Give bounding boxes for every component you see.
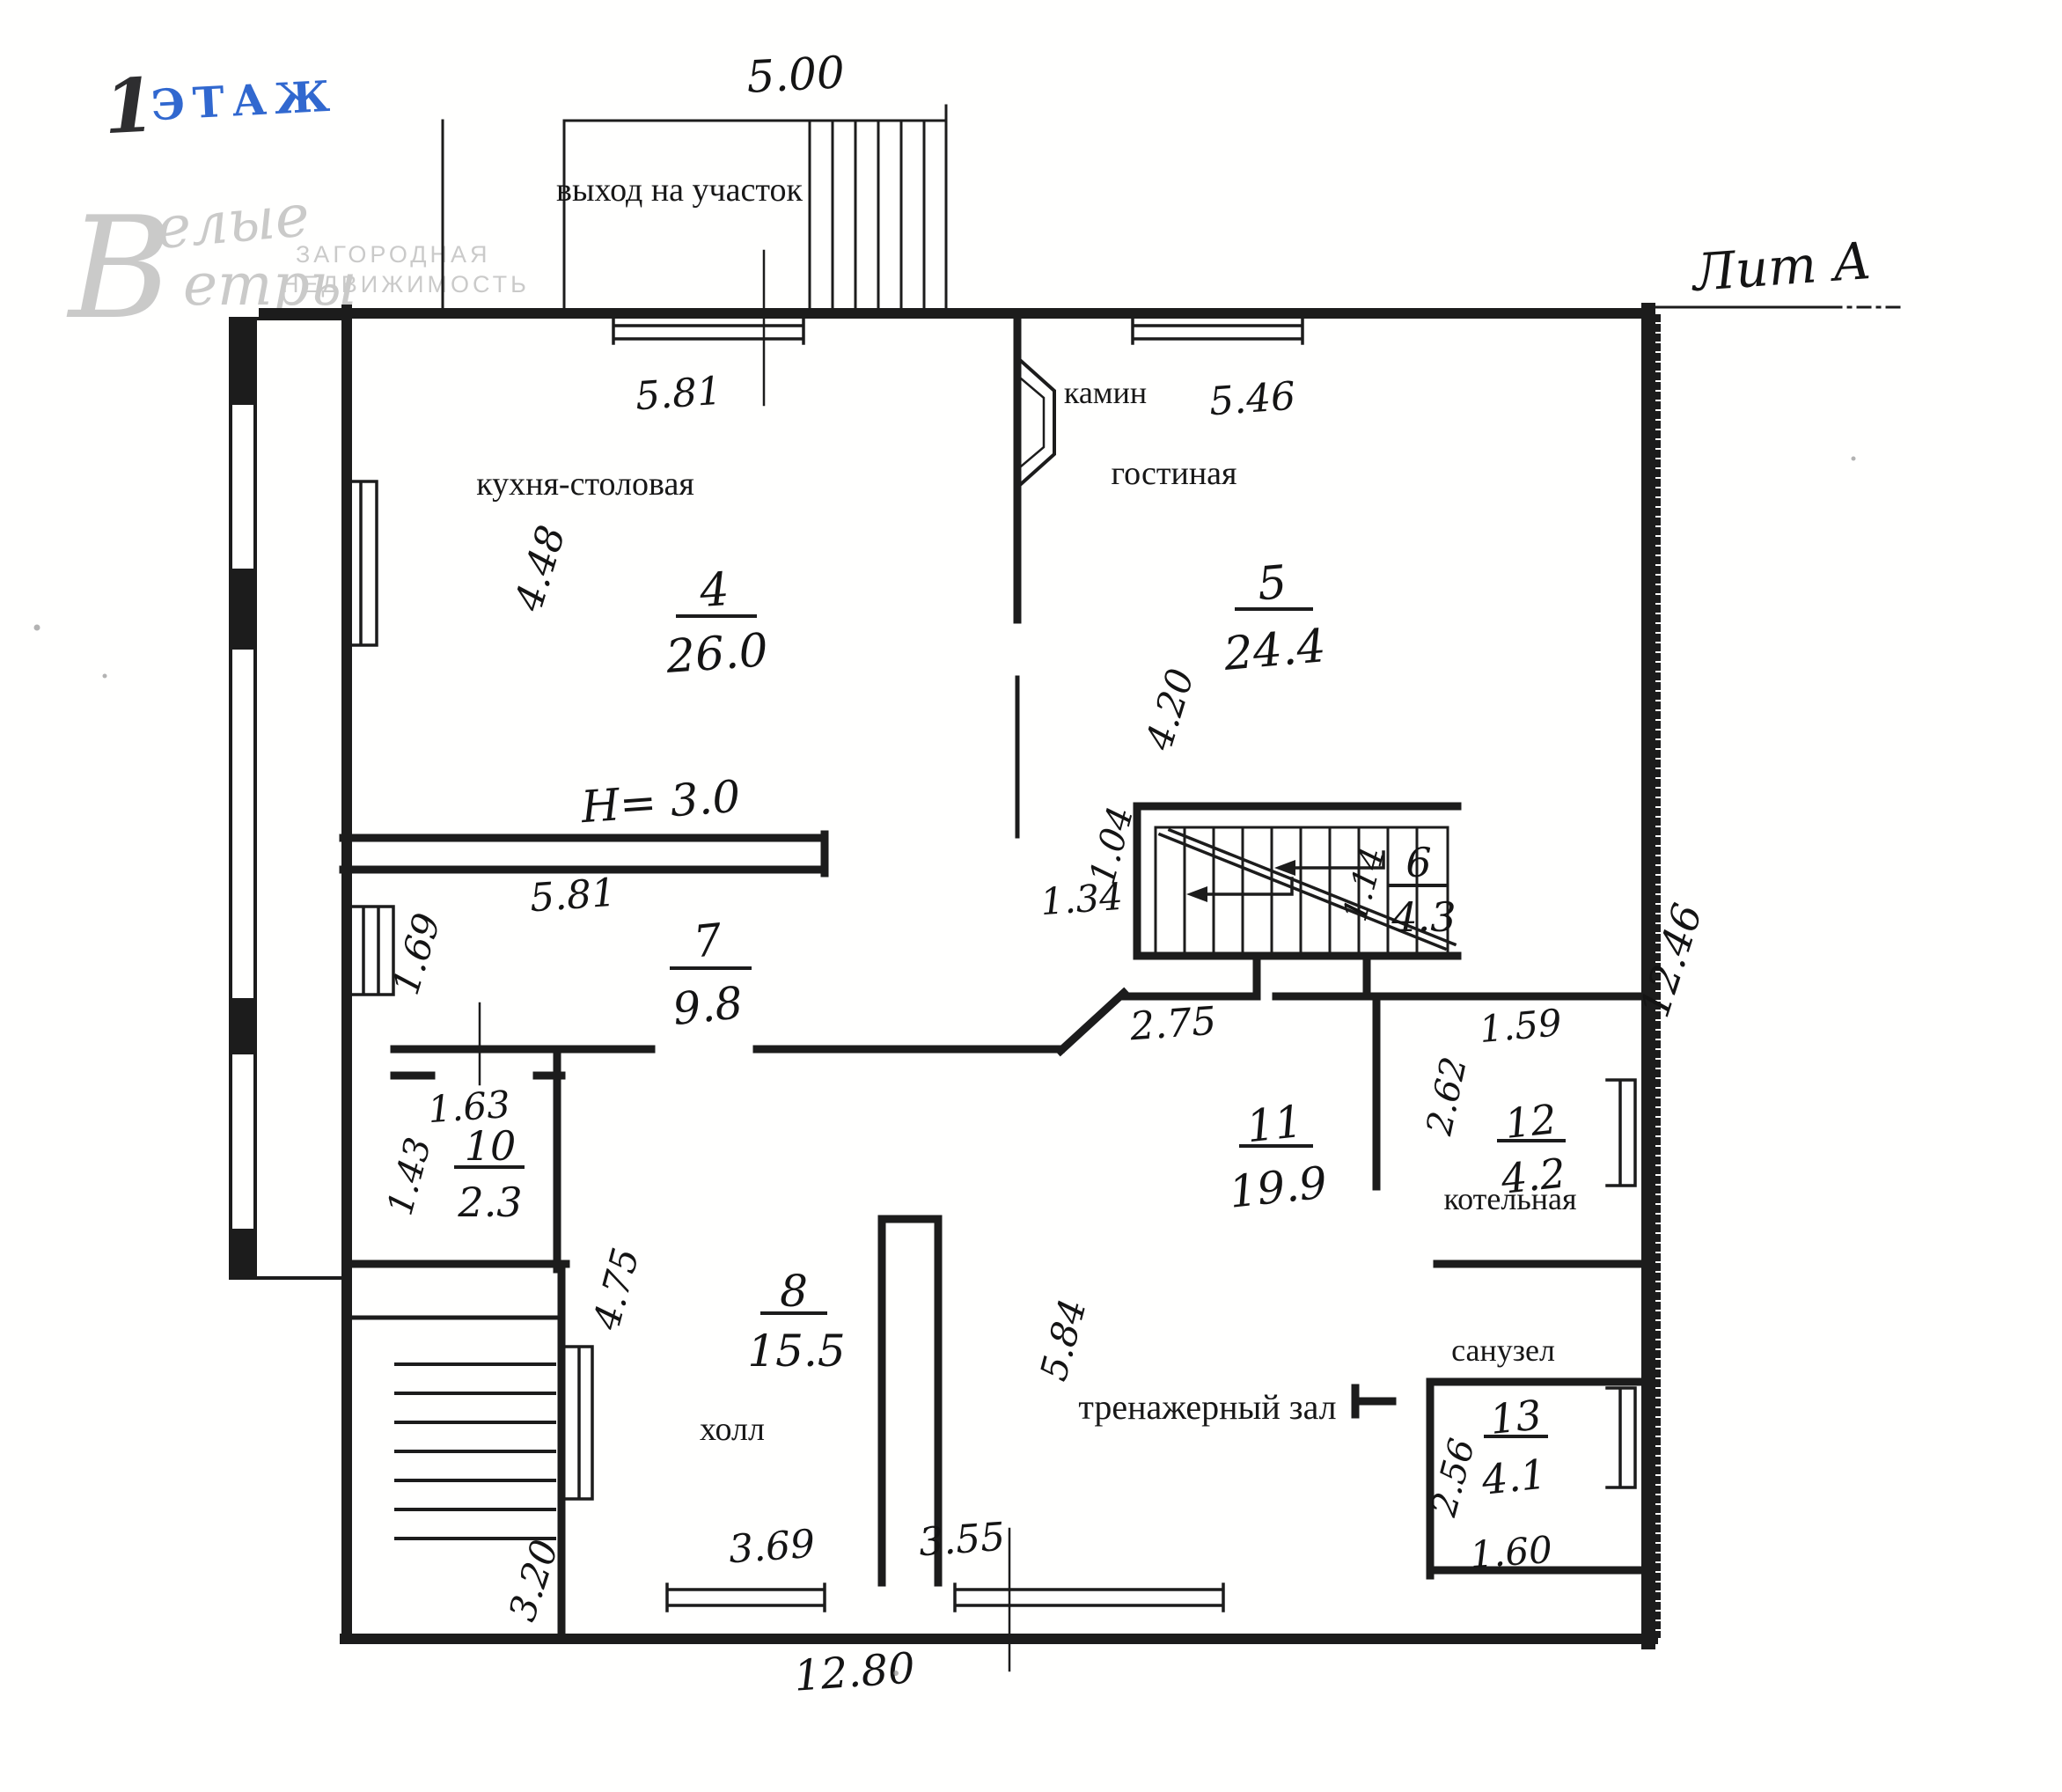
stair-room-area: 4.3: [1391, 893, 1456, 941]
floor-stamp-word: ЭТАЖ: [150, 71, 340, 130]
exit-label: выход на участок: [556, 172, 803, 209]
dim-boiler-left: 2.62: [1419, 1054, 1475, 1140]
boiler-number: 12: [1502, 1095, 1559, 1148]
dim-stair-right: 1.14: [1335, 843, 1391, 925]
watermark-subtitle-1: ЗАГОРОДНАЯ: [296, 241, 491, 268]
scan-speck: [1852, 457, 1856, 461]
stair-room-number: 6: [1405, 839, 1431, 886]
hall-label: холл: [700, 1411, 765, 1448]
wall-pier: [229, 1229, 257, 1280]
agency-watermark: В елые етры ЗАГОРОДНАЯ НЕДВИЖИМОСТЬ: [66, 181, 530, 350]
scan-speck: [103, 674, 107, 679]
hall-number: 8: [780, 1266, 808, 1317]
scan-specks: [34, 457, 1856, 1677]
wall-pier: [229, 998, 257, 1054]
floor-plan-scan: В елые етры ЗАГОРОДНАЯ НЕДВИЖИМОСТЬ 1 ЭТ…: [0, 0, 2062, 1792]
litera-annotation: Лит А: [1653, 231, 1901, 307]
dim-porch-width: 5.00: [745, 47, 846, 103]
kitchen-label: кухня-столовая: [476, 466, 694, 503]
dim-kitchen-left: 4.48: [506, 520, 575, 617]
windows: [347, 319, 1635, 1611]
veranda-band-lines: [231, 319, 347, 1278]
dim-passage: 2.75: [1127, 999, 1217, 1050]
gym-number: 11: [1244, 1096, 1305, 1152]
gym-label: тренажерный зал: [1078, 1387, 1336, 1427]
porch-side-window: [566, 1347, 592, 1499]
dim-boiler-top: 1.59: [1478, 1001, 1563, 1051]
floor-stamp: 1 ЭТАЖ: [101, 51, 340, 151]
dim-bath-bottom: 1.60: [1469, 1528, 1554, 1576]
dim-gym-left: 5.84: [1031, 1295, 1095, 1385]
fireplace-inner: [1021, 378, 1044, 466]
corridor-number: 7: [691, 914, 724, 968]
pantry-number: 10: [465, 1122, 517, 1170]
stair-arrowhead-lower: [1186, 886, 1207, 902]
dim-kitchen-top: 5.81: [634, 369, 723, 420]
floor-plan-drawing: В елые етры ЗАГОРОДНАЯ НЕДВИЖИМОСТЬ 1 ЭТ…: [0, 0, 2062, 1792]
living-top-window: [1133, 319, 1303, 343]
living-label: гостиная: [1111, 455, 1236, 492]
pantry-area: 2.3: [457, 1179, 522, 1226]
dim-hall-left: 4.75: [584, 1244, 648, 1335]
kitchen-top-window: [613, 319, 804, 343]
living-area: 24.4: [1221, 620, 1328, 681]
fireplace-outline: [1021, 361, 1054, 484]
fireplace-label: камин: [1064, 375, 1147, 410]
dim-hall-bottom: 3.69: [727, 1522, 816, 1573]
bath-right-window: [1607, 1388, 1635, 1487]
dim-living-left: 4.20: [1137, 664, 1202, 756]
room-annotations: кухня-столовая 4 26.0 5.81 4.48 гостиная…: [380, 369, 1712, 1701]
boiler-right-window: [1607, 1080, 1635, 1186]
litera-label: Лит А: [1688, 231, 1873, 303]
scan-speck: [34, 625, 40, 631]
kitchen-number: 4: [697, 563, 730, 618]
gym-area: 19.9: [1227, 1157, 1330, 1217]
dim-stair-under: 1.34: [1039, 875, 1125, 923]
bath-number: 13: [1487, 1391, 1544, 1443]
scan-speck: [893, 1671, 899, 1676]
hall-area: 15.5: [747, 1326, 845, 1377]
dim-living-top: 5.46: [1207, 374, 1296, 425]
entrance-steps: [396, 1364, 554, 1539]
bath-label: санузел: [1451, 1333, 1555, 1368]
kitchen-area: 26.0: [664, 624, 770, 684]
dim-pantry-left: 1.43: [380, 1134, 439, 1220]
porch-steps: [810, 121, 924, 310]
living-number: 5: [1255, 556, 1288, 612]
bath-area: 4.1: [1479, 1450, 1548, 1503]
floor-stamp-number: 1: [101, 61, 158, 151]
garden-exit-porch: выход на участок 5.00: [443, 47, 946, 405]
gym-bottom-window: [955, 1584, 1223, 1611]
corridor-area: 9.8: [671, 977, 745, 1035]
dim-porch-side: 3.20: [500, 1534, 566, 1626]
dim-corridor-top: 5.81: [528, 870, 617, 922]
boiler-area: 4.2: [1498, 1149, 1567, 1202]
watermark-subtitle-2: НЕДВИЖИМОСТЬ: [282, 271, 530, 297]
hall-bottom-window: [667, 1584, 825, 1611]
dim-gym-bottom: 3.55: [917, 1515, 1006, 1566]
wall-pier: [229, 317, 257, 405]
ceiling-height: H= 3.0: [579, 771, 743, 834]
wall-pier: [229, 569, 257, 650]
left-veranda-band: [229, 317, 347, 1280]
